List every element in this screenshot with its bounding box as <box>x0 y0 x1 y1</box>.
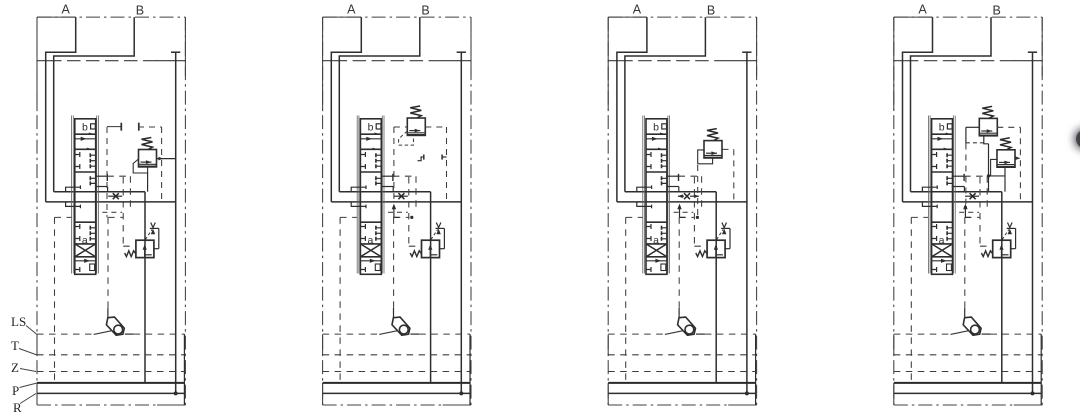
svg-text:LS: LS <box>11 314 26 329</box>
svg-text:Z: Z <box>11 360 19 375</box>
svg-text:R: R <box>13 400 22 414</box>
svg-text:T: T <box>11 338 19 353</box>
svg-text:P: P <box>12 383 19 398</box>
